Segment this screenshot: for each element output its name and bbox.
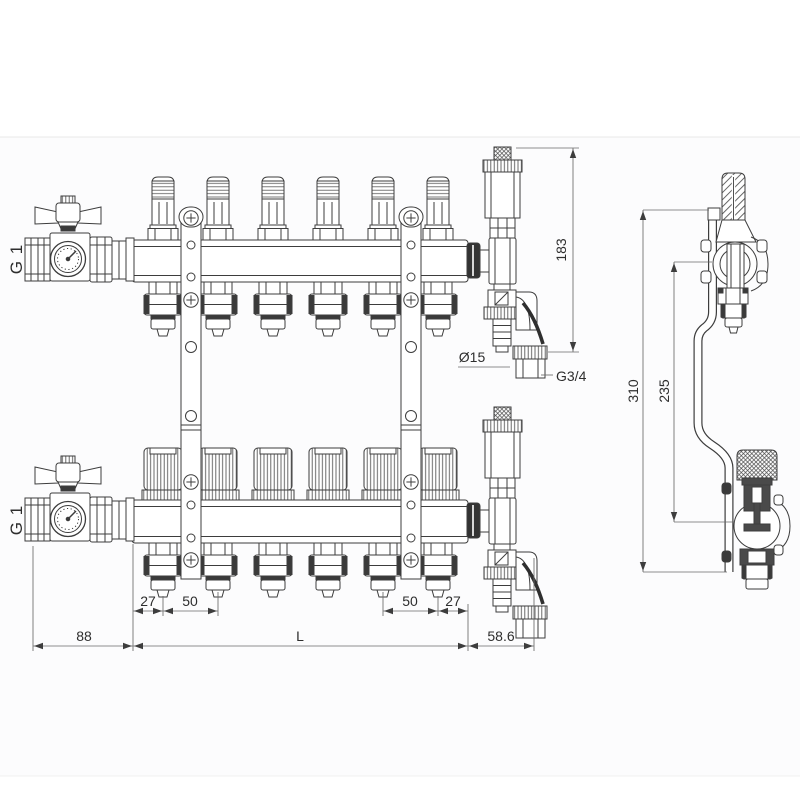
valve-cap — [362, 448, 404, 500]
dim-drain-offset-label: 58.6 — [487, 628, 514, 644]
technical-drawing: 27 50 50 27 88 L 58.6 Ø15 G3/4 183 310 2… — [0, 0, 800, 800]
drain-thread-label: G3/4 — [556, 368, 587, 384]
dim-edge-left-label: 27 — [140, 593, 156, 609]
inlet-thread-label-top: G 1 — [7, 244, 26, 274]
mounting-bracket-left — [179, 207, 203, 579]
valve-cap — [307, 448, 349, 500]
mounting-bracket-right — [399, 207, 423, 579]
dim-overall-height-label: 310 — [625, 379, 641, 403]
valve-cap — [417, 448, 459, 500]
dim-vent-height-label: 183 — [553, 238, 569, 262]
flow-meter — [313, 177, 343, 240]
dim-edge-right-label: 27 — [445, 593, 461, 609]
flow-meter — [368, 177, 398, 240]
flow-meter — [423, 177, 453, 240]
flow-meter — [203, 177, 233, 240]
drain-diameter-label: Ø15 — [459, 349, 486, 365]
valve-cap — [252, 448, 294, 500]
valve-cap — [142, 448, 184, 500]
flow-meter — [258, 177, 288, 240]
dim-axis-distance-label: 235 — [656, 379, 672, 403]
manifold-technical-drawing-page: 27 50 50 27 88 L 58.6 Ø15 G3/4 183 310 2… — [0, 0, 800, 800]
valve-cap — [197, 448, 239, 500]
dim-length-label: L — [296, 628, 304, 644]
flow-meter — [148, 177, 178, 240]
dim-pitch-right-label: 50 — [402, 593, 418, 609]
dim-pitch-left-label: 50 — [182, 593, 198, 609]
dim-valve-offset-label: 88 — [76, 628, 92, 644]
inlet-thread-label-bottom: G 1 — [7, 505, 26, 535]
